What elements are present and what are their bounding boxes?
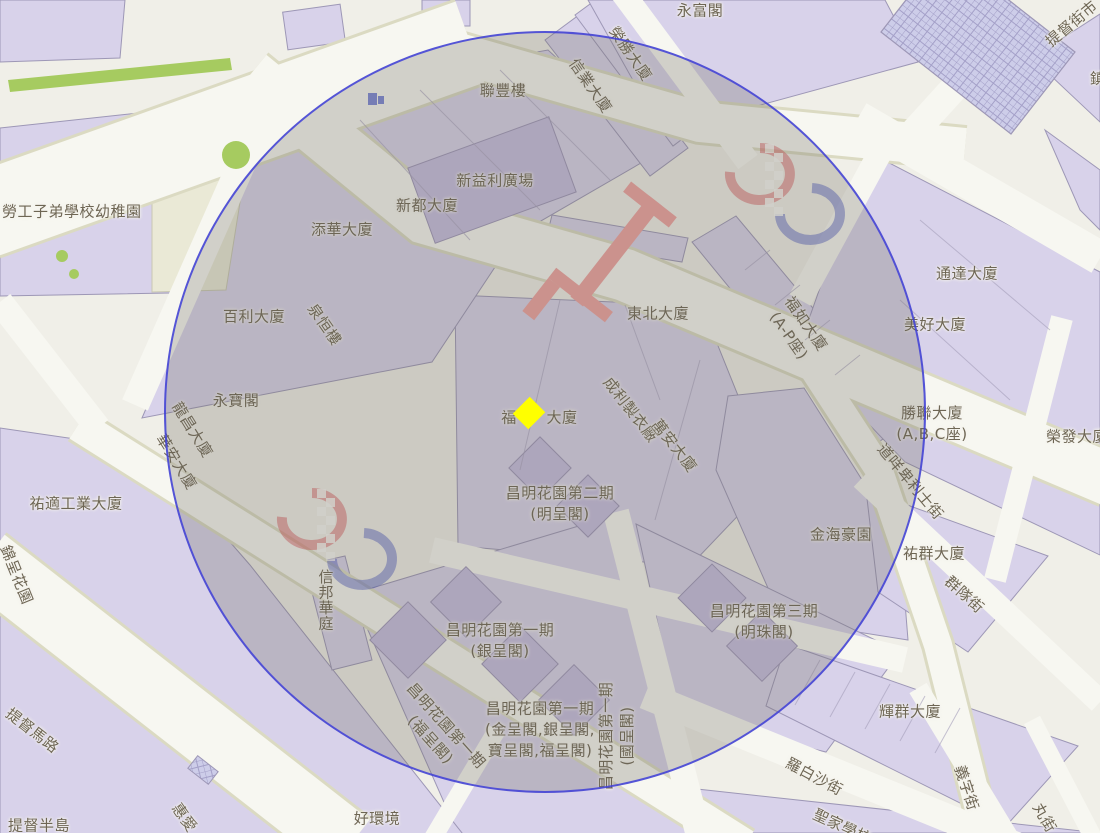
label-cheong-ming-2: 昌明花園第二期 (明呈閣) — [506, 483, 615, 525]
label-mei-ho: 美好大廈 — [904, 315, 966, 336]
label-yau-kwan: 祐群大廈 — [903, 544, 965, 565]
label-wing-fat: 榮發大廈 — [1046, 427, 1100, 448]
label-yau-sik: 祐適工業大廈 — [29, 494, 122, 515]
label-wing-fu-kok: 永富閣 — [677, 1, 724, 22]
label-kam-hoi: 金海豪園 — [810, 525, 872, 546]
label-fok-building-right: 大廈 — [546, 408, 577, 429]
label-cheong-ming-1a: 昌明花園第一期 (銀呈閣) — [446, 620, 555, 662]
label-cheong-ming-1b: 昌明花園第一期 (金呈閣,銀呈閣, 寶呈閣,福呈閣) — [485, 699, 595, 762]
label-tim-wah: 添華大廈 — [311, 220, 373, 241]
label-pak-lee: 百利大廈 — [223, 307, 285, 328]
label-ho-wan-king: 好環境 — [354, 809, 401, 830]
label-sing-luen: 勝聯大廈 (A,B,C座) — [896, 403, 967, 445]
label-tai-tuk-peninsula: 提督半島 — [8, 816, 70, 833]
label-cheong-ming-3: 昌明花園第三期 (明珠閣) — [710, 601, 819, 643]
label-edge-partial: 鎮 — [1086, 70, 1100, 86]
label-fai-kwan: 輝群大廈 — [879, 702, 941, 723]
label-san-yick-lee: 新益利廣場 — [456, 171, 534, 192]
label-school: 勞工子弟學校幼稚園 — [2, 202, 142, 223]
label-san-tou: 新都大廈 — [396, 196, 458, 217]
map-canvas[interactable]: 勞工子弟學校幼稚園 永富閣 榮勝大廈 信業大廈 聯豐樓 新益利廣場 新都大廈 添… — [0, 0, 1100, 833]
label-cheong-ming-1v: 昌明花園第一期 (國呈閣) — [596, 682, 638, 791]
label-tung-tat: 通達大廈 — [936, 264, 998, 285]
label-tung-pak: 東北大廈 — [627, 304, 689, 325]
label-luen-fung: 聯豐樓 — [480, 81, 527, 102]
label-shun-pong: 信邦華庭 — [315, 569, 336, 631]
label-wing-po-kok: 永寶閣 — [213, 391, 260, 412]
